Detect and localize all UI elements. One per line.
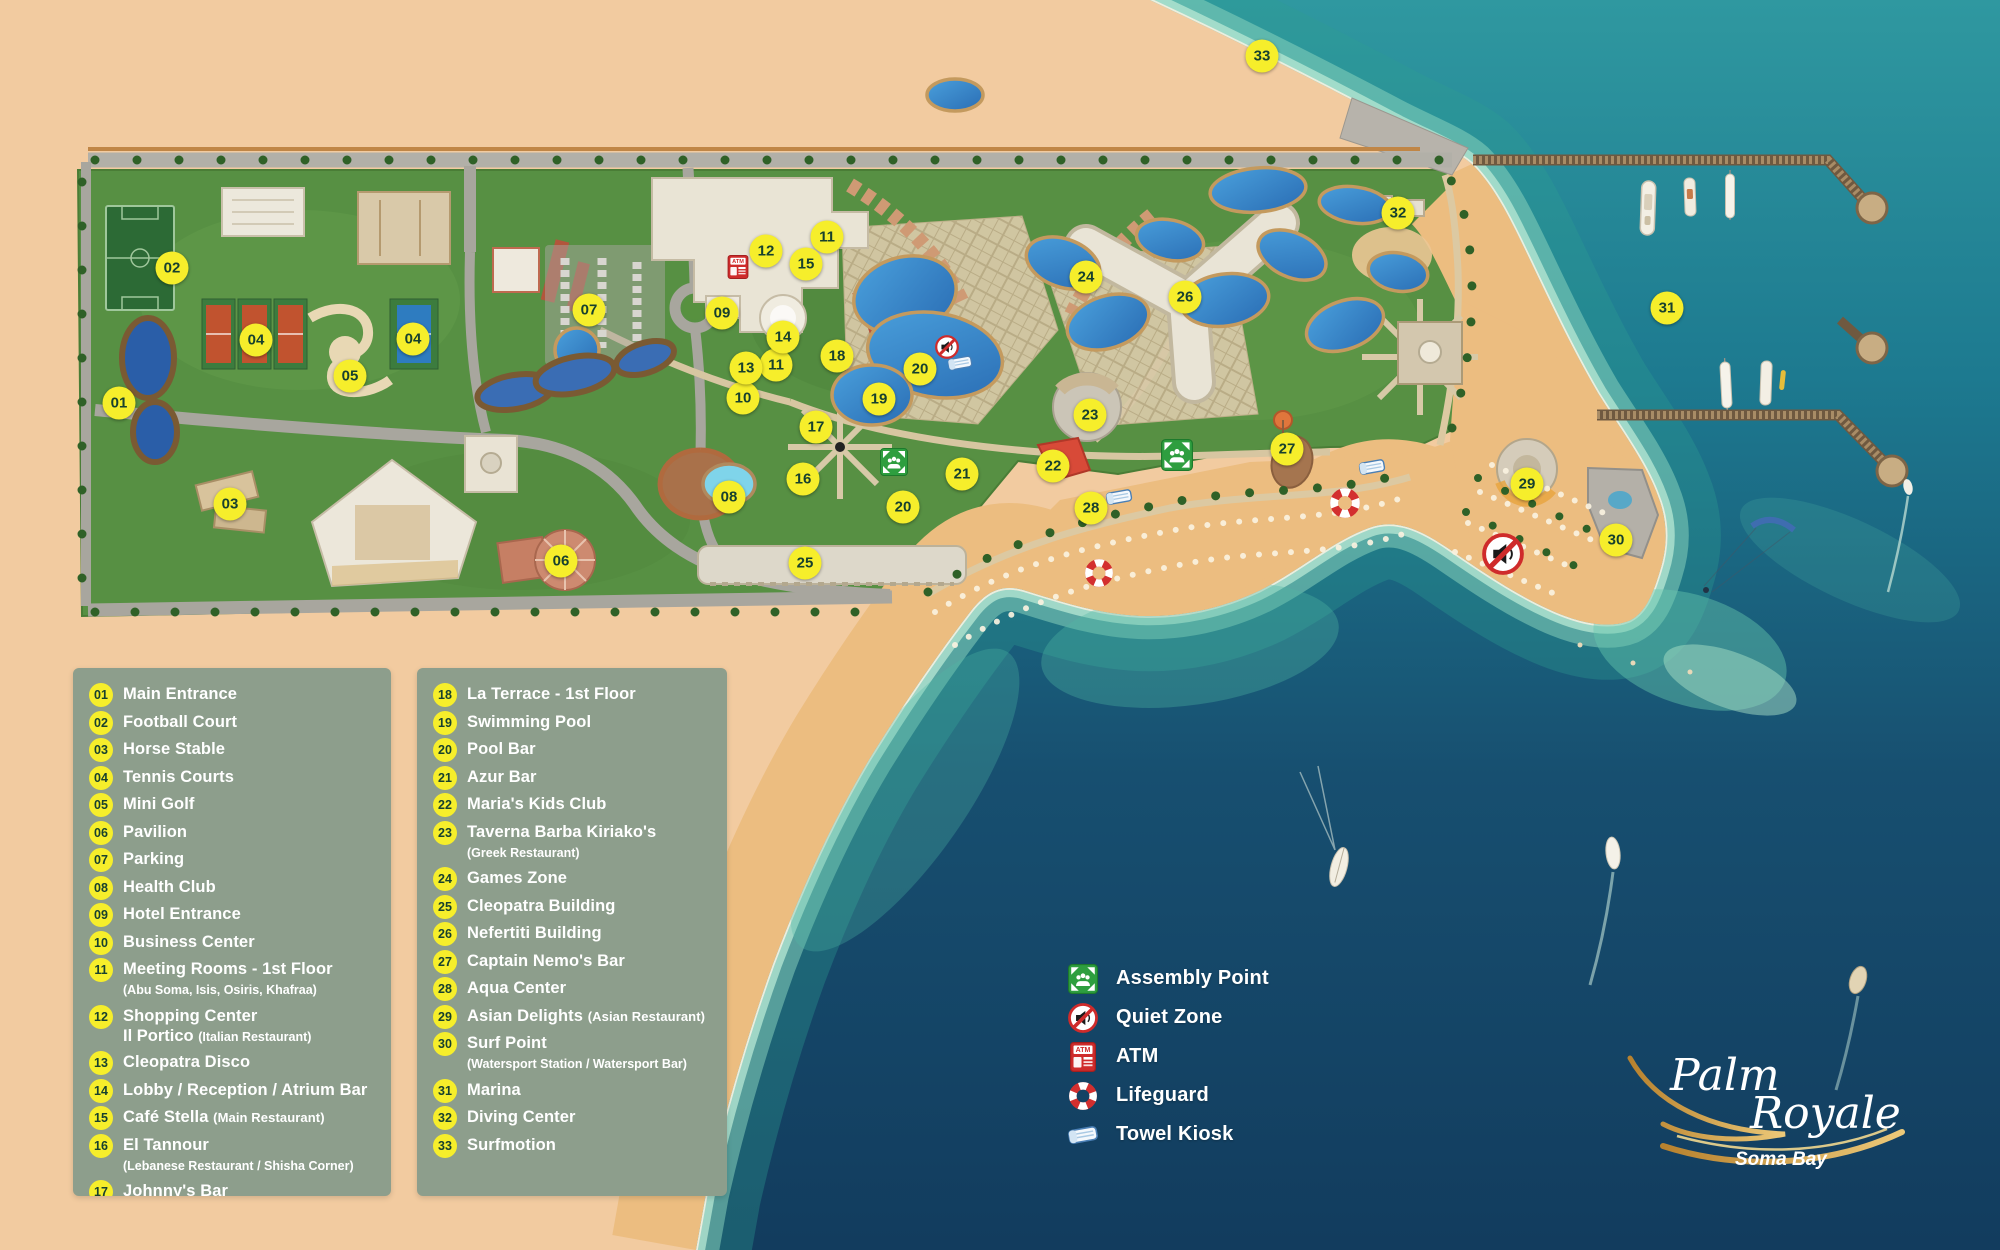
legend-item-title: Parking [123, 847, 184, 871]
legend-item-title: Taverna Barba Kiriako's [467, 820, 656, 844]
legend-item-title: Aqua Center [467, 976, 566, 1000]
quiet-zone-icon [1066, 1003, 1100, 1033]
map-marker-02: 02 [156, 252, 189, 285]
legend-item-21: 21 Azur Bar [433, 765, 713, 790]
symbol-legend-quiet-zone: Quiet Zone [1066, 1001, 1269, 1034]
symbol-legend-label: Quiet Zone [1116, 1006, 1222, 1029]
legend-number-badge: 33 [433, 1134, 457, 1158]
legend-item-15: 15 Café Stella (Main Restaurant) [89, 1105, 377, 1130]
legend-item-title: Tennis Courts [123, 765, 234, 789]
legend-item-26: 26 Nefertiti Building [433, 921, 713, 946]
legend-number-badge: 01 [89, 683, 113, 707]
map-marker-12: 12 [750, 235, 783, 268]
legend-item-title: El Tannour [123, 1133, 354, 1157]
legend-number-badge: 24 [433, 867, 457, 891]
legend-item-title: Health Club [123, 875, 216, 899]
legend-item-13: 13 Cleopatra Disco [89, 1050, 377, 1075]
legend-number-badge: 25 [433, 895, 457, 919]
legend-number-badge: 19 [433, 711, 457, 735]
legend-item-17: 17 Johnny's Bar [89, 1179, 377, 1196]
legend-number-badge: 27 [433, 950, 457, 974]
map-marker-10: 10 [727, 382, 760, 415]
legend-number-badge: 05 [89, 793, 113, 817]
legend-item-31: 31 Marina [433, 1078, 713, 1103]
map-marker-01: 01 [103, 387, 136, 420]
legend-item-title: Cleopatra Building [467, 894, 615, 918]
svg-text:ATM: ATM [1076, 1047, 1091, 1054]
map-marker-08: 08 [713, 481, 746, 514]
legend-item-28: 28 Aqua Center [433, 976, 713, 1001]
map-marker-16: 16 [787, 463, 820, 496]
legend-number-badge: 09 [89, 903, 113, 927]
map-marker-07: 07 [573, 294, 606, 327]
legend-item-10: 10 Business Center [89, 930, 377, 955]
legend-item-title: Azur Bar [467, 765, 537, 789]
legend-number-badge: 12 [89, 1005, 113, 1029]
legend-item-05: 05 Mini Golf [89, 792, 377, 817]
symbol-legend-label: Lifeguard [1116, 1084, 1209, 1107]
symbol-legend-label: Towel Kiosk [1116, 1123, 1233, 1146]
map-marker-28: 28 [1075, 492, 1108, 525]
legend-item-27: 27 Captain Nemo's Bar [433, 949, 713, 974]
legend-item-06: 06 Pavilion [89, 820, 377, 845]
legend-number-badge: 20 [433, 738, 457, 762]
legend-number-badge: 21 [433, 766, 457, 790]
legend-number-badge: 16 [89, 1134, 113, 1158]
legend-item-subtitle: (Watersport Station / Watersport Bar) [467, 1055, 687, 1072]
legend-item-title: Meeting Rooms - 1st Floor [123, 957, 333, 981]
towel-kiosk-icon [1066, 1122, 1100, 1148]
symbol-legend-atm: ATM ATM [1066, 1040, 1269, 1073]
legend-item-22: 22 Maria's Kids Club [433, 792, 713, 817]
legend-number-badge: 06 [89, 821, 113, 845]
legend-item-title: Nefertiti Building [467, 921, 602, 945]
legend-item-20: 20 Pool Bar [433, 737, 713, 762]
map-marker-20: 20 [887, 491, 920, 524]
legend-item-16: 16 El Tannour(Lebanese Restaurant / Shis… [89, 1133, 377, 1177]
legend-item-03: 03 Horse Stable [89, 737, 377, 762]
legend-number-badge: 23 [433, 821, 457, 845]
legend-item-title: Marina [467, 1078, 521, 1102]
legend-item-04: 04 Tennis Courts [89, 765, 377, 790]
atm-icon: ATM [1066, 1042, 1100, 1072]
legend-number-badge: 29 [433, 1005, 457, 1029]
logo-name-line2: Royale [1749, 1088, 1901, 1139]
map-marker-03: 03 [214, 488, 247, 521]
legend-number-badge: 02 [89, 711, 113, 735]
legend-item-32: 32 Diving Center [433, 1105, 713, 1130]
legend-item-title: Hotel Entrance [123, 902, 241, 926]
legend-number-badge: 15 [89, 1106, 113, 1130]
map-marker-04: 04 [240, 324, 273, 357]
map-marker-21: 21 [946, 458, 979, 491]
resort-logo: Palm Royale Soma Bay [1615, 1028, 1915, 1178]
map-marker-29: 29 [1511, 468, 1544, 501]
legend-number-badge: 11 [89, 958, 113, 982]
lifeguard-icon [1084, 558, 1114, 588]
map-marker-30: 30 [1600, 524, 1633, 557]
legend-item-29: 29 Asian Delights (Asian Restaurant) [433, 1004, 713, 1029]
legend-item-12: 12 Shopping CenterIl Portico (Italian Re… [89, 1004, 377, 1048]
legend-item-title: Horse Stable [123, 737, 225, 761]
legend-item-title: Asian Delights (Asian Restaurant) [467, 1004, 705, 1029]
legend-panel-1: 01 Main Entrance 02 Football Court 03 Ho… [73, 668, 391, 1196]
resort-map-poster: ATM 010203040405060708091011111213141516… [0, 0, 2000, 1250]
towel-kiosk-icon [1104, 486, 1134, 509]
map-marker-04: 04 [397, 323, 430, 356]
map-marker-11: 11 [811, 221, 844, 254]
map-marker-25: 25 [789, 547, 822, 580]
legend-item-subtitle: Il Portico (Italian Restaurant) [123, 1028, 311, 1045]
legend-item-title: Diving Center [467, 1105, 576, 1129]
legend-item-title: Cleopatra Disco [123, 1050, 250, 1074]
symbol-legend-label: ATM [1116, 1045, 1158, 1068]
symbol-legend-lifeguard: Lifeguard [1066, 1079, 1269, 1112]
lifeguard-icon [1329, 487, 1361, 519]
legend-item-subtitle: (Abu Soma, Isis, Osiris, Khafraa) [123, 981, 333, 998]
legend-number-badge: 31 [433, 1079, 457, 1103]
legend-number-badge: 04 [89, 766, 113, 790]
legend-number-badge: 10 [89, 931, 113, 955]
map-marker-09: 09 [706, 297, 739, 330]
legend-item-19: 19 Swimming Pool [433, 710, 713, 735]
map-marker-11: 11 [760, 349, 793, 382]
map-marker-27: 27 [1271, 433, 1304, 466]
legend-item-11: 11 Meeting Rooms - 1st Floor(Abu Soma, I… [89, 957, 377, 1001]
symbols-legend: Assembly Point Quiet Zone ATM ATM Lifegu… [1066, 962, 1269, 1151]
legend-item-01: 01 Main Entrance [89, 682, 377, 707]
map-marker-18: 18 [821, 340, 854, 373]
legend-item-24: 24 Games Zone [433, 866, 713, 891]
legend-item-title: Pool Bar [467, 737, 536, 761]
symbol-legend-assembly-point: Assembly Point [1066, 962, 1269, 995]
map-marker-20: 20 [904, 353, 937, 386]
map-marker-33: 33 [1246, 40, 1279, 73]
legend-number-badge: 22 [433, 793, 457, 817]
legend-item-subtitle: (Greek Restaurant) [467, 844, 656, 861]
map-marker-06: 06 [545, 545, 578, 578]
legend-item-33: 33 Surfmotion [433, 1133, 713, 1158]
legend-number-badge: 17 [89, 1180, 113, 1196]
legend-item-02: 02 Football Court [89, 710, 377, 735]
map-marker-26: 26 [1169, 281, 1202, 314]
legend-item-title: Café Stella (Main Restaurant) [123, 1105, 325, 1130]
map-marker-22: 22 [1037, 450, 1070, 483]
legend-item-title: Mini Golf [123, 792, 194, 816]
legend-item-title: Swimming Pool [467, 710, 591, 734]
assembly-point-icon [1161, 439, 1193, 471]
legend-item-08: 08 Health Club [89, 875, 377, 900]
legend-number-badge: 30 [433, 1032, 457, 1056]
legend-number-badge: 03 [89, 738, 113, 762]
legend-number-badge: 26 [433, 922, 457, 946]
legend-item-title: Shopping Center [123, 1004, 311, 1028]
svg-text:ATM: ATM [732, 259, 744, 265]
map-marker-32: 32 [1382, 197, 1415, 230]
legend-item-14: 14 Lobby / Reception / Atrium Bar [89, 1078, 377, 1103]
lifeguard-icon [1066, 1081, 1100, 1111]
legend-number-badge: 07 [89, 848, 113, 872]
legend-item-title: Lobby / Reception / Atrium Bar [123, 1078, 367, 1102]
legend-number-badge: 08 [89, 876, 113, 900]
legend-item-title: Main Entrance [123, 682, 237, 706]
legend-item-title: La Terrace - 1st Floor [467, 682, 636, 706]
legend-item-23: 23 Taverna Barba Kiriako's(Greek Restaur… [433, 820, 713, 864]
legend-item-title: Surf Point [467, 1031, 687, 1055]
legend-item-title: Johnny's Bar [123, 1179, 228, 1196]
map-marker-23: 23 [1074, 399, 1107, 432]
atm-icon: ATM [728, 255, 749, 279]
quiet-zone-icon [1482, 533, 1524, 575]
legend-number-badge: 28 [433, 977, 457, 1001]
legend-item-title: Games Zone [467, 866, 567, 890]
logo-subtitle: Soma Bay [1735, 1149, 1828, 1170]
legend-number-badge: 32 [433, 1106, 457, 1130]
map-marker-05: 05 [334, 360, 367, 393]
towel-kiosk-icon [946, 353, 974, 374]
map-marker-31: 31 [1651, 292, 1684, 325]
legend-item-25: 25 Cleopatra Building [433, 894, 713, 919]
legend-number-badge: 14 [89, 1079, 113, 1103]
map-marker-14: 14 [767, 321, 800, 354]
symbol-legend-towel-kiosk: Towel Kiosk [1066, 1118, 1269, 1151]
legend-item-subtitle: (Lebanese Restaurant / Shisha Corner) [123, 1157, 354, 1174]
map-marker-13: 13 [730, 352, 763, 385]
symbol-legend-label: Assembly Point [1116, 967, 1269, 990]
legend-item-title: Business Center [123, 930, 255, 954]
map-marker-24: 24 [1070, 261, 1103, 294]
legend-item-title: Maria's Kids Club [467, 792, 607, 816]
map-marker-15: 15 [790, 248, 823, 281]
assembly-point-icon [1066, 964, 1100, 994]
legend-item-title: Surfmotion [467, 1133, 556, 1157]
legend-item-07: 07 Parking [89, 847, 377, 872]
towel-kiosk-icon [1357, 456, 1387, 479]
legend-item-30: 30 Surf Point(Watersport Station / Water… [433, 1031, 713, 1075]
map-marker-19: 19 [863, 383, 896, 416]
legend-item-title: Football Court [123, 710, 237, 734]
legend-panel-2: 18 La Terrace - 1st Floor 19 Swimming Po… [417, 668, 727, 1196]
legend-number-badge: 13 [89, 1051, 113, 1075]
legend-item-title: Pavilion [123, 820, 187, 844]
legend-item-09: 09 Hotel Entrance [89, 902, 377, 927]
legend-item-title: Captain Nemo's Bar [467, 949, 625, 973]
legend-number-badge: 18 [433, 683, 457, 707]
map-marker-17: 17 [800, 411, 833, 444]
assembly-point-icon [880, 448, 908, 476]
legend-item-18: 18 La Terrace - 1st Floor [433, 682, 713, 707]
